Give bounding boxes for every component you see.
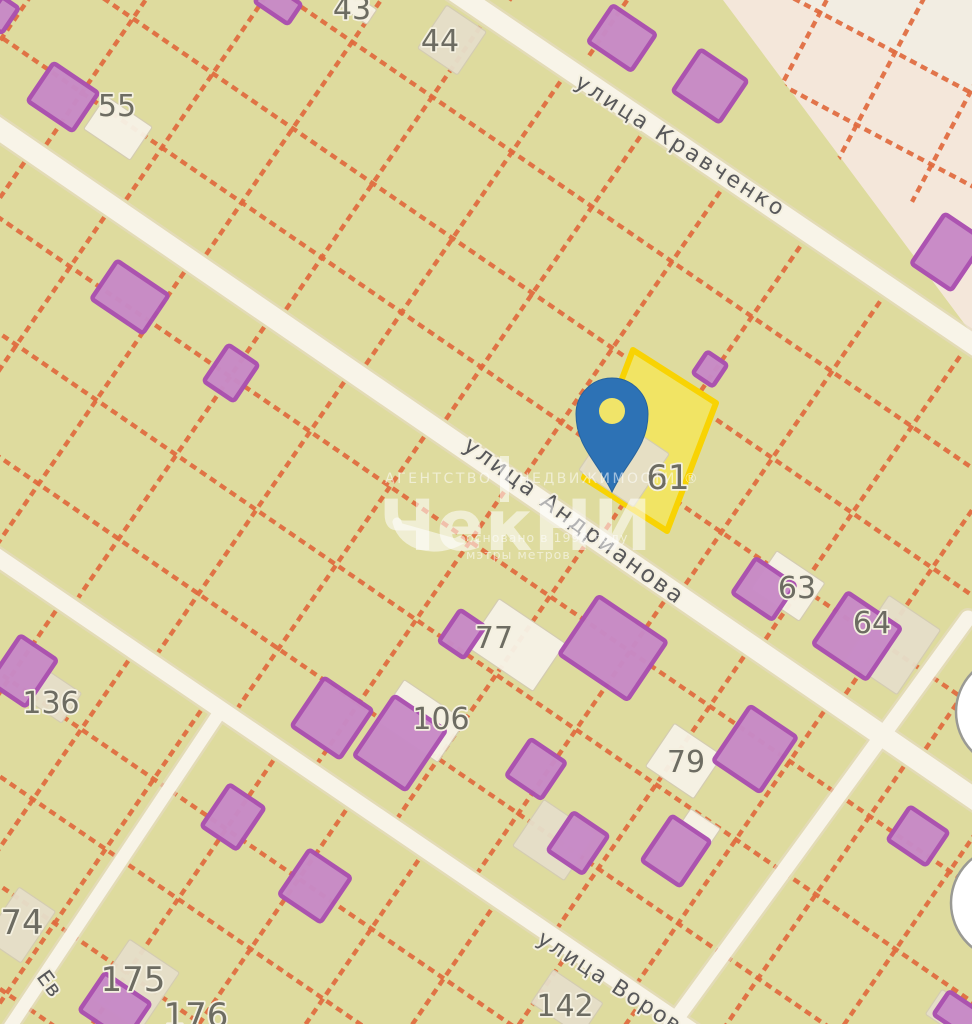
- watermark-founded-text: основано в 1998 году: [466, 530, 629, 545]
- parcel-number-64: 64: [853, 606, 891, 641]
- parcel-number-142: 142: [536, 989, 593, 1024]
- map-viewport[interactable]: улица Кравченкоулица Андриановаулица Вор…: [0, 0, 972, 1024]
- watermark-slogan-text: мэтры метров: [466, 547, 571, 562]
- parcel-number-43: 43: [333, 0, 371, 27]
- parcel-number-175: 175: [101, 960, 166, 1000]
- parcel-number-106: 106: [412, 702, 469, 737]
- parcel-number-55: 55: [98, 89, 136, 124]
- parcel-number-176: 176: [164, 996, 229, 1024]
- parcel-number-74: 74: [0, 903, 43, 943]
- agency-watermark: АГЕНТСТВО НЕДВИЖИМОСТИ ® ЧекНИ основано …: [379, 456, 700, 567]
- parcel-number-44: 44: [421, 24, 459, 59]
- parcel-number-136: 136: [22, 686, 79, 721]
- parcel-number-79: 79: [667, 745, 705, 780]
- parcel-number-77: 77: [475, 621, 513, 656]
- map-canvas[interactable]: улица Кравченкоулица Андриановаулица Вор…: [0, 0, 972, 1024]
- map-pin-hole: [599, 398, 625, 424]
- parcel-number-63: 63: [778, 571, 816, 606]
